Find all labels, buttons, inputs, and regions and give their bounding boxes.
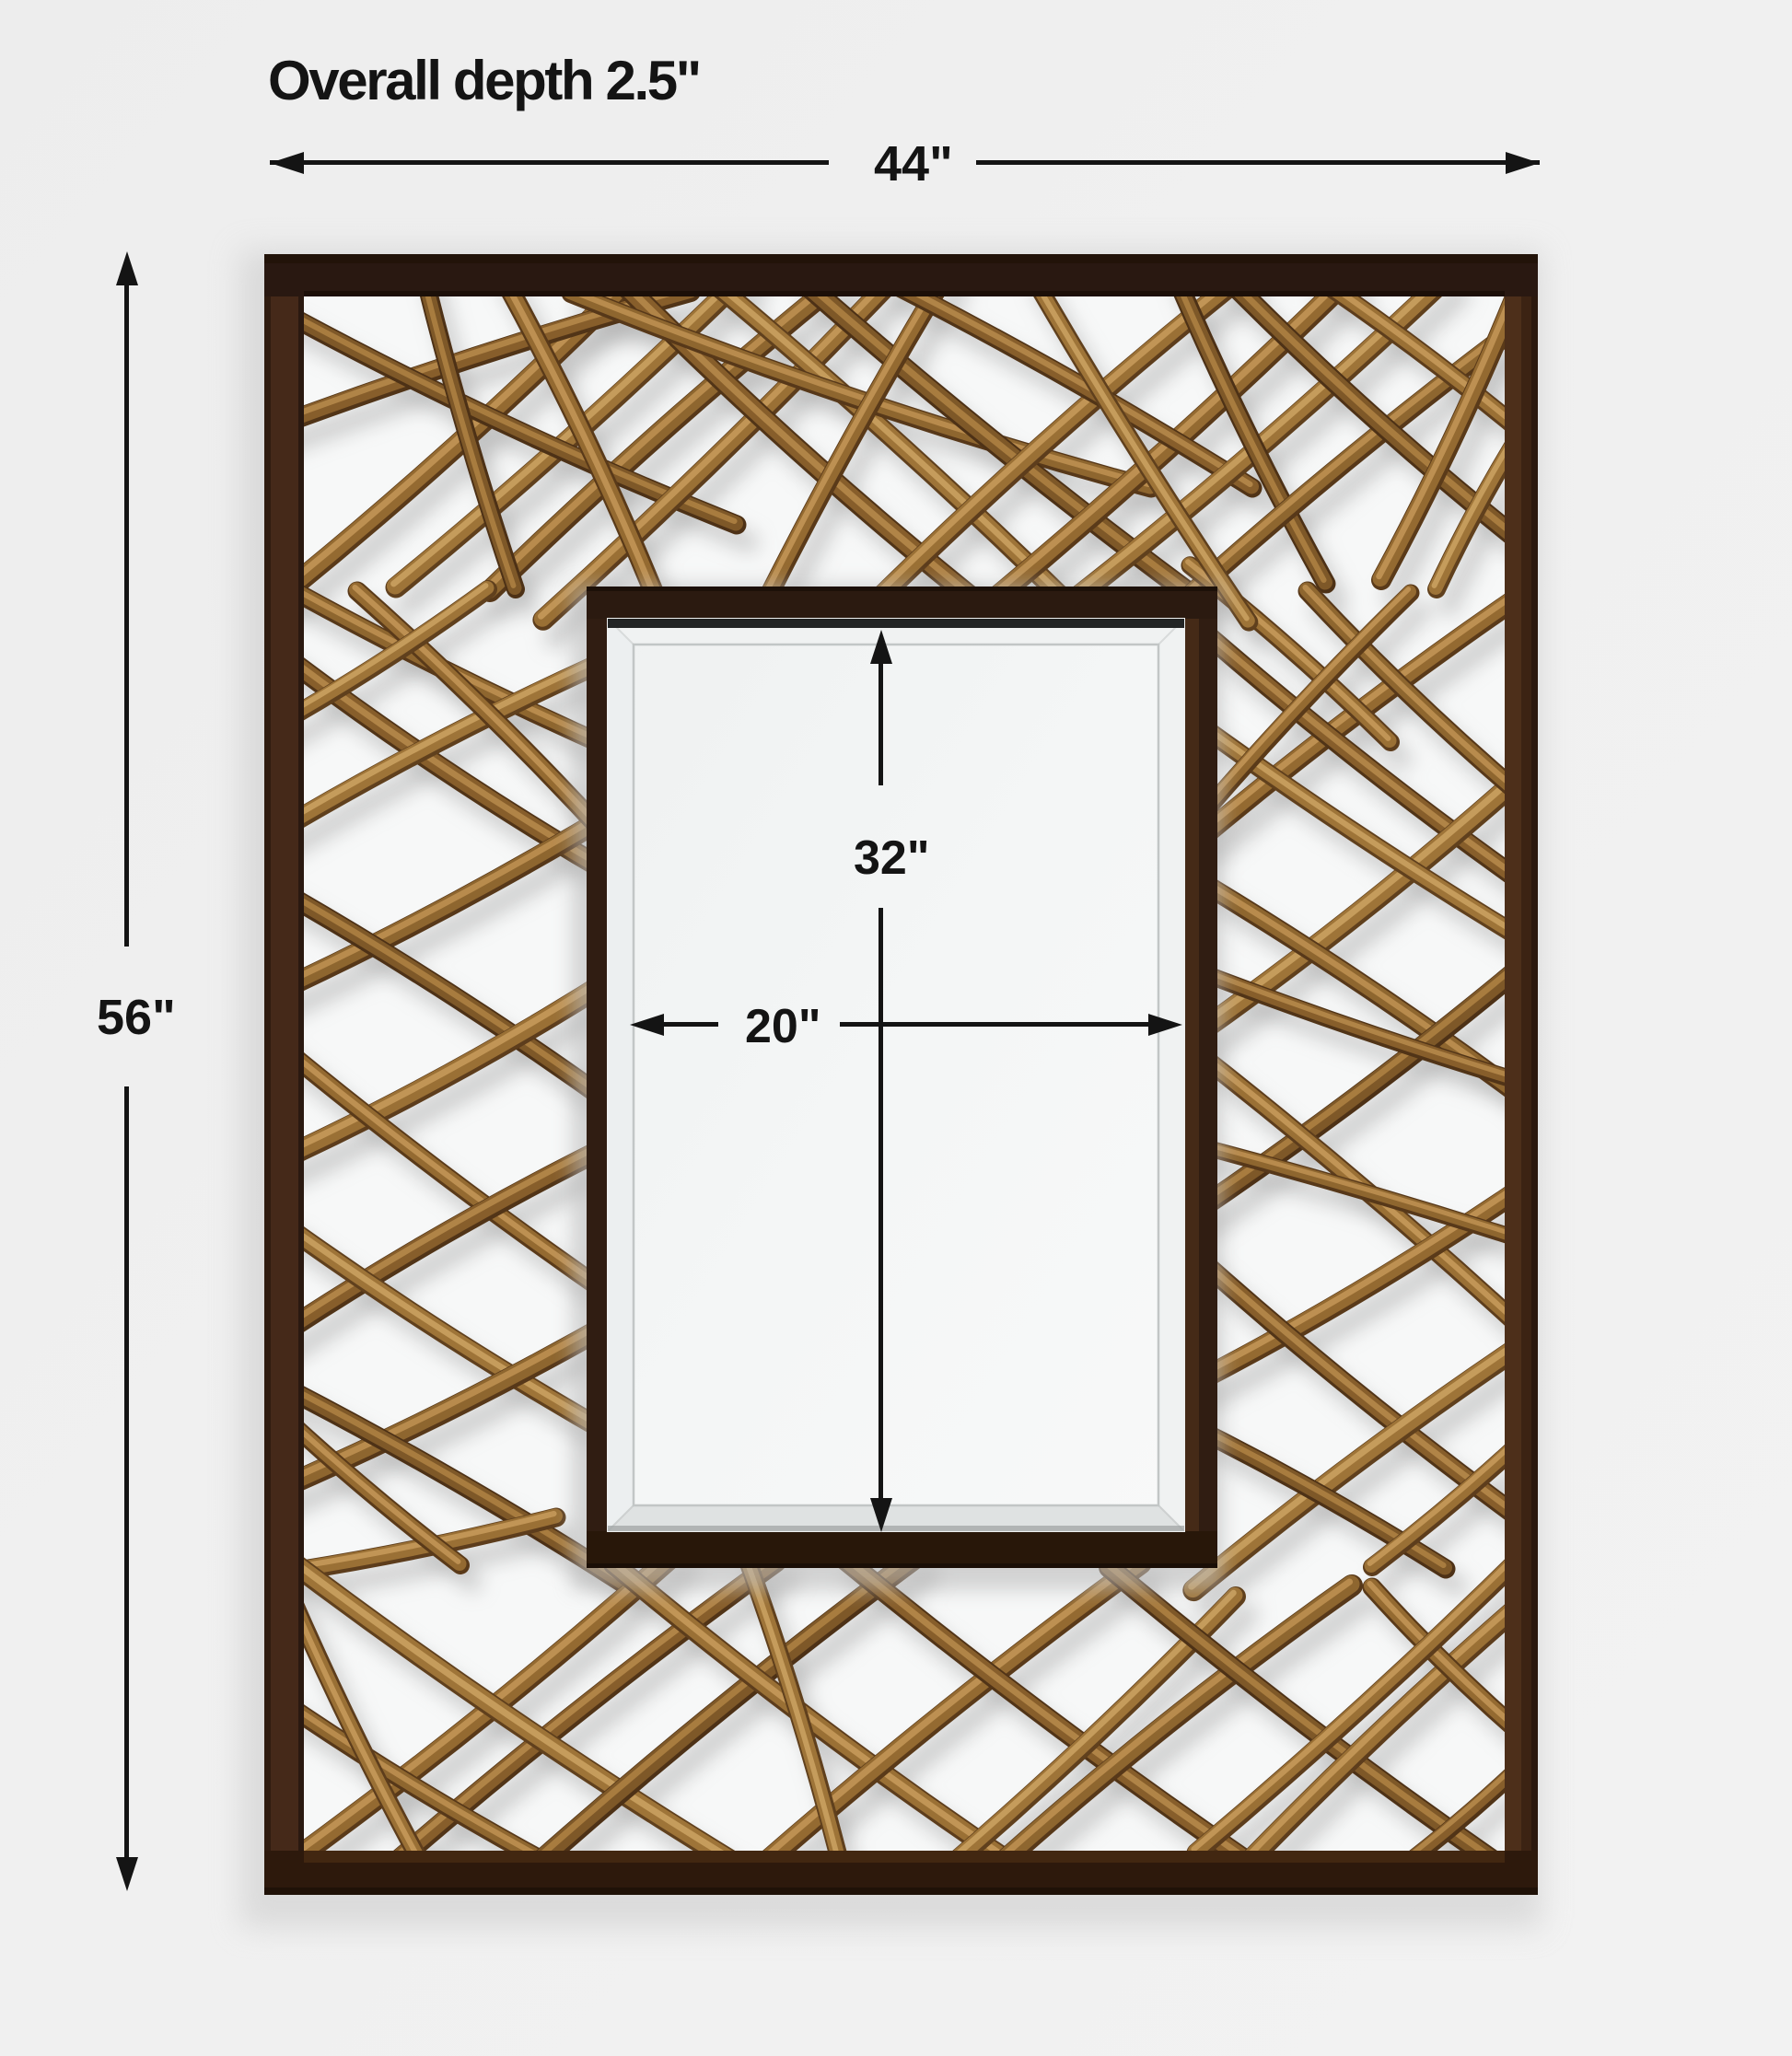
svg-text:Overall depth 2.5": Overall depth 2.5"	[268, 50, 700, 111]
svg-text:20": 20"	[745, 1000, 821, 1053]
svg-text:56": 56"	[97, 990, 176, 1045]
svg-text:32": 32"	[854, 831, 930, 885]
svg-text:44": 44"	[874, 136, 953, 192]
